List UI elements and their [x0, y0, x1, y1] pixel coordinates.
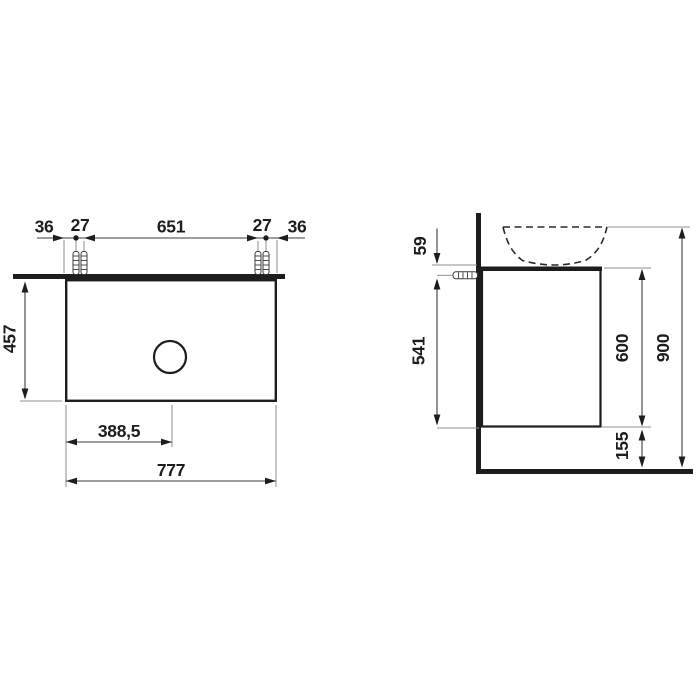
dimension-label-body-height: 600 [612, 333, 632, 362]
dimension-arrow [265, 478, 276, 485]
mounting-dowel-icon [263, 252, 269, 275]
top-view: 36 27 651 27 36 457 388,5 777 [0, 215, 307, 487]
dimension-bottom: 388,5 777 [66, 405, 276, 487]
vanity-dimension-drawing: 36 27 651 27 36 457 388,5 777 [0, 0, 700, 700]
dimension-label-holes-span: 651 [157, 217, 186, 237]
technical-drawing-page: 36 27 651 27 36 457 388,5 777 [0, 0, 700, 700]
dimension-point-dot [263, 235, 268, 240]
dimension-arrow [639, 269, 646, 280]
mounting-dowel-icon [73, 252, 79, 275]
wall-line [476, 213, 481, 474]
dimension-arrow [639, 416, 646, 427]
dimension-arrow [22, 282, 29, 293]
dimension-label-pair-right: 27 [253, 215, 272, 235]
dimension-label-fixing-to-bottom: 541 [409, 336, 429, 365]
dimension-arrow [277, 235, 288, 242]
dimension-fixing-to-bottom: 541 [409, 275, 480, 428]
floor-line [476, 469, 693, 474]
dimension-label-pair-left: 27 [71, 215, 90, 235]
side-view: 59 541 600 155 [409, 213, 694, 474]
wall-line [13, 274, 285, 279]
dimension-label-width: 777 [157, 460, 185, 480]
dimension-label-drain-offset: 388,5 [98, 421, 141, 441]
dimension-arrow [84, 235, 95, 242]
dimension-depth: 457 [0, 282, 62, 402]
dimension-arrow [247, 235, 258, 242]
dimension-arrow [53, 235, 64, 242]
dimension-arrow [161, 439, 172, 446]
washbasin-outline [503, 227, 607, 265]
cabinet-side-outline [482, 269, 601, 427]
mounting-dowel-icon [81, 252, 87, 275]
dimension-body-height: 600 [602, 268, 651, 427]
dimension-label-edge-right: 36 [288, 217, 307, 237]
countertop-edge [481, 267, 602, 272]
dimension-arrow [639, 457, 646, 468]
dimension-arrow [434, 415, 441, 426]
dimension-label-depth: 457 [0, 325, 20, 353]
dimension-arrow [66, 439, 77, 446]
dimension-arrow [66, 478, 77, 485]
dimension-label-basin-height: 59 [410, 236, 430, 255]
dimension-label-floor-clearance: 155 [612, 431, 632, 460]
dimension-basin-height: 59 [410, 229, 477, 266]
dimension-arrow [679, 228, 686, 239]
dimension-point-dot [73, 235, 78, 240]
dimension-arrow [679, 457, 686, 468]
dimension-arrow [434, 253, 441, 264]
dimension-arrow [639, 430, 646, 441]
dimension-floor-clearance: 155 [612, 430, 645, 468]
wall-anchor-icon [453, 272, 478, 279]
dimension-arrow [434, 279, 441, 290]
mounting-dowel-icon [255, 252, 261, 275]
dimension-arrow [22, 389, 29, 400]
dimension-label-total-height: 900 [653, 333, 673, 362]
dimension-label-edge-left: 36 [35, 217, 54, 237]
